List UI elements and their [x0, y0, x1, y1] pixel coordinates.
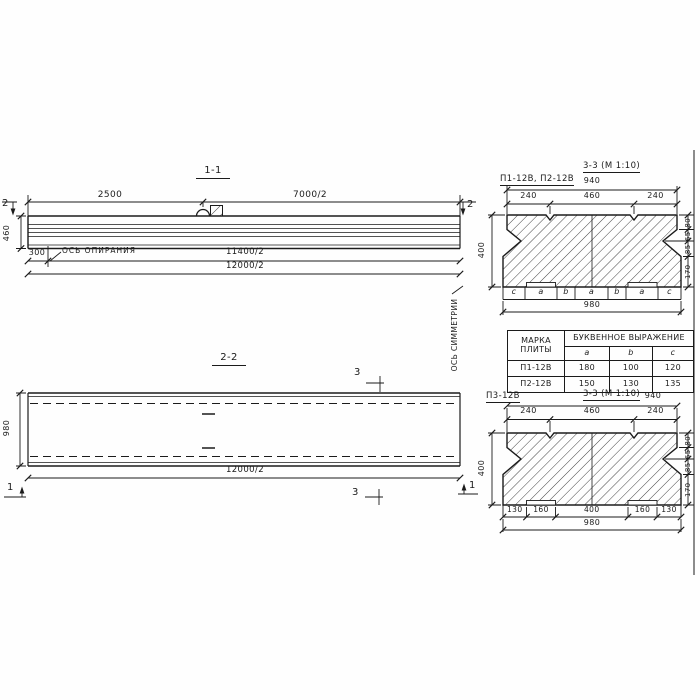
table-cell-c-1: 120	[653, 361, 694, 377]
dim-height-460: 460	[3, 216, 14, 250]
letter-a-1: a	[525, 288, 557, 296]
cross-section-upper-body	[503, 215, 681, 287]
dim-170-lower: 170	[685, 475, 696, 506]
section-1-1-linework	[2, 195, 476, 294]
section-marker-3-bottom: 3	[352, 488, 359, 498]
dim-130-left: 130	[503, 506, 527, 514]
dim-160-left: 160	[527, 506, 556, 514]
dim-85-lower: 85	[685, 460, 696, 476]
section-marker-2-left: 2	[2, 199, 9, 209]
dim-980-plan: 980	[3, 392, 14, 464]
dim-240-lower-right: 240	[634, 407, 677, 415]
upper-section-plate-marks: П1-12В, П2-12В	[500, 175, 574, 186]
symmetry-axis-label: ОСЬ СИММЕТРИИ	[451, 291, 462, 379]
letter-b-1: b	[557, 288, 575, 296]
cross-section-lower-body	[503, 433, 681, 505]
dim-940-upper: 940	[577, 177, 607, 185]
letter-c-1: c	[503, 288, 525, 296]
table-cell-mark-1: П1-12В	[508, 361, 565, 377]
dim-940-lower: 940	[638, 392, 668, 400]
dim-65-upper: 65	[685, 230, 696, 242]
dim-11400-2: 11400/2	[170, 248, 320, 257]
section-marker-1-right: 1	[469, 481, 476, 491]
dim-130-right: 130	[657, 506, 681, 514]
plate-dimension-table: МАРКА ПЛИТЫ БУКВЕННОЕ ВЫРАЖЕНИЕ a b c П1…	[507, 330, 694, 393]
dim-65-lower: 65	[685, 448, 696, 460]
table-row: П1-12В 180 100 120	[508, 361, 694, 377]
section-2-2-title: 2-2	[212, 353, 246, 366]
dim-80-lower: 80	[685, 434, 696, 449]
letter-b-2: b	[608, 288, 626, 296]
dim-240-lower-left: 240	[507, 407, 550, 415]
section-marker-3-top: 3	[354, 368, 361, 378]
dim-2500: 2500	[40, 191, 180, 200]
dim-300: 300	[26, 249, 48, 257]
dim-12000-2-plan: 12000/2	[170, 466, 320, 475]
dim-240-upper-right: 240	[634, 192, 677, 200]
letter-c-2: c	[658, 288, 681, 296]
letter-a-3: a	[626, 288, 658, 296]
table-cell-b-1: 100	[610, 361, 653, 377]
section-2-2-linework	[4, 376, 478, 505]
upper-section-title: 3-3 (М 1:10)	[583, 162, 640, 173]
dim-160-right: 160	[628, 506, 657, 514]
dim-460-lower: 460	[550, 407, 634, 415]
dim-85-upper: 85	[685, 242, 696, 258]
drawing-sheet: 1-1 2500 7000/2 2 2 460 300 ОСЬ ОПИРАНИЯ…	[0, 0, 700, 700]
dim-7000-2: 7000/2	[230, 191, 390, 200]
section-1-1-title: 1-1	[196, 166, 230, 179]
dim-400-bottom: 400	[556, 506, 629, 514]
dim-460-upper: 460	[550, 192, 634, 200]
dim-400-lower: 400	[478, 432, 489, 504]
section-marker-1-left: 1	[7, 483, 14, 493]
dim-170-upper: 170	[685, 257, 696, 288]
table-header-mark: МАРКА ПЛИТЫ	[508, 331, 565, 361]
dim-240-upper-left: 240	[507, 192, 550, 200]
lower-section-title: 3-3 (М 1:10)	[583, 390, 640, 401]
dim-980-upper: 980	[577, 301, 607, 309]
table-cell-a-1: 180	[565, 361, 610, 377]
table-subheader-c: c	[653, 347, 694, 361]
lower-section-plate-mark: П3-12В	[486, 392, 520, 403]
section-marker-2-right: 2	[467, 200, 474, 210]
table-subheader-a: a	[565, 347, 610, 361]
dim-80-upper: 80	[685, 216, 696, 231]
table-subheader-b: b	[610, 347, 653, 361]
dim-12000-2: 12000/2	[170, 262, 320, 271]
letter-a-2: a	[575, 288, 608, 296]
dim-400-upper: 400	[478, 214, 489, 286]
table-header-group: БУКВЕННОЕ ВЫРАЖЕНИЕ	[565, 331, 694, 347]
dim-980-lower: 980	[577, 519, 607, 527]
bearing-axis-label: ОСЬ ОПИРАНИЯ	[62, 247, 136, 255]
